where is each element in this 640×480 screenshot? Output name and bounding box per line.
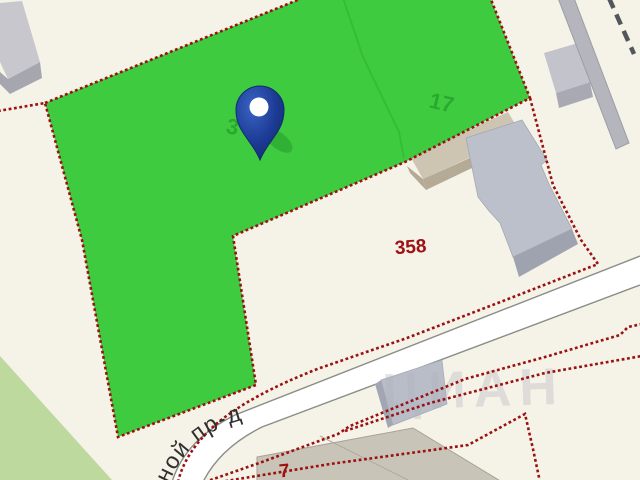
- pin-center-dot: [250, 98, 269, 117]
- map-canvas[interactable]: 17 3 ЦИАН 358 7 сной пр-д: [0, 0, 640, 480]
- parcel-7-label: 7: [278, 461, 291, 480]
- parcel-358-label: 358: [394, 236, 427, 259]
- map-viewport[interactable]: 17 3 ЦИАН 358 7 сной пр-д: [0, 0, 640, 480]
- watermark-text: ЦИАН: [381, 358, 565, 422]
